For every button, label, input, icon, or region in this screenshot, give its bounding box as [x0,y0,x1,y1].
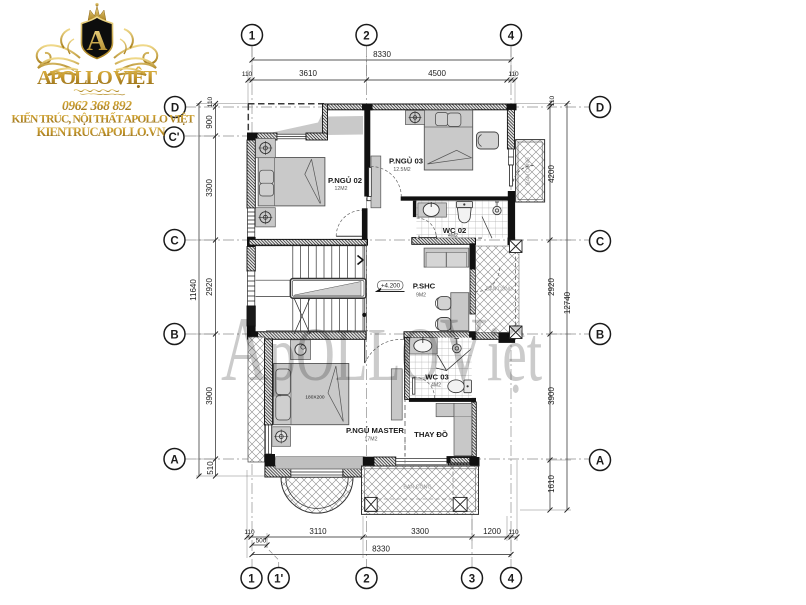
svg-text:BAN CÔNG: BAN CÔNG [525,157,532,185]
svg-text:12740: 12740 [563,291,572,314]
svg-text:3300: 3300 [411,527,429,536]
svg-text:C': C' [168,132,179,144]
svg-text:C: C [170,236,178,248]
svg-text:3300: 3300 [205,179,214,197]
svg-text:A: A [87,25,108,57]
svg-text:1: 1 [249,31,256,43]
svg-text:110: 110 [207,96,214,107]
svg-text:P.NGỦ 02: P.NGỦ 02 [328,176,362,185]
svg-text:2920: 2920 [205,278,214,296]
svg-text:110: 110 [244,529,255,536]
svg-text:110: 110 [508,71,519,78]
svg-text:110: 110 [549,95,556,106]
svg-text:3: 3 [469,574,475,586]
svg-text:11640: 11640 [189,279,198,301]
svg-text:8330: 8330 [373,50,391,59]
svg-text:1200: 1200 [483,527,501,536]
svg-text:110: 110 [508,529,519,536]
svg-text:9M2: 9M2 [416,293,426,299]
svg-text:1610: 1610 [547,475,556,493]
svg-text:4500: 4500 [428,69,446,78]
svg-text:4: 4 [508,574,515,586]
svg-text:12.5M2: 12.5M2 [393,167,410,173]
svg-text:B: B [596,330,604,342]
svg-text:4200: 4200 [547,165,556,183]
svg-text:4: 4 [508,31,515,43]
svg-text:1': 1' [274,574,283,586]
svg-text:BAN CÔNG: BAN CÔNG [403,484,431,491]
svg-text:2920: 2920 [547,278,556,296]
svg-text:3900: 3900 [547,387,556,405]
svg-text:3900: 3900 [205,387,214,405]
svg-text:+4.200: +4.200 [381,283,401,290]
svg-text:2: 2 [363,31,369,43]
svg-text:P.SHC: P.SHC [413,282,436,291]
svg-text:C: C [596,237,604,249]
svg-text:KIENTRUCAPOLLO.VN: KIENTRUCAPOLLO.VN [37,125,166,139]
svg-text:B: B [170,330,178,342]
svg-text:0962 368 892: 0962 368 892 [62,98,132,113]
svg-text:500: 500 [256,538,267,545]
svg-text:P.NGỦ MASTER: P.NGỦ MASTER [346,426,404,435]
svg-text:3610: 3610 [299,69,317,78]
svg-text:ApOLLOViệt: ApOLLOViệt [221,299,542,400]
svg-text:THAY ĐỒ: THAY ĐỒ [414,429,448,439]
svg-text:2: 2 [363,574,369,586]
svg-text:A: A [596,456,604,468]
svg-text:P.NGỦ 03: P.NGỦ 03 [389,157,423,166]
svg-text:110: 110 [242,71,253,78]
svg-text:4M2: 4M2 [448,233,458,239]
svg-text:17M2: 17M2 [365,437,378,443]
svg-text:APOLLO VIỆT: APOLLO VIỆT [37,66,157,89]
svg-text:8330: 8330 [372,545,390,554]
svg-text:12M2: 12M2 [335,186,348,192]
svg-text:KIẾN TRÚC, NỘI THẤT APOLLO VIỆ: KIẾN TRÚC, NỘI THẤT APOLLO VIỆT [12,111,195,126]
svg-text:1: 1 [248,574,255,586]
svg-text:3110: 3110 [309,527,327,536]
svg-text:900: 900 [205,115,214,129]
svg-text:A: A [170,455,178,467]
svg-text:D: D [596,103,604,115]
svg-text:510: 510 [206,461,215,475]
